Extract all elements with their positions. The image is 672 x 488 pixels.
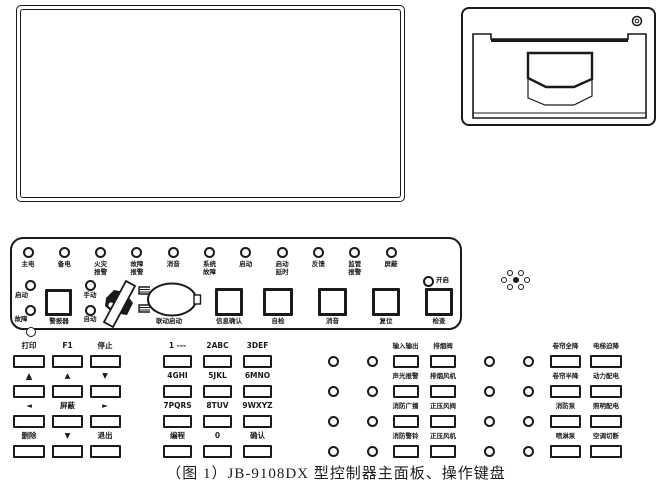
key-smoke-exhaust-fan[interactable] [430, 385, 456, 398]
indicator-led [204, 247, 215, 258]
key-sound-light-alarm[interactable] [393, 385, 419, 398]
key-label-down-icon: ▼ [48, 432, 88, 440]
key-label: 8TUV [198, 402, 238, 410]
device-led [484, 416, 495, 427]
indicator-led [23, 247, 34, 258]
key-up[interactable] [52, 385, 83, 398]
key-1[interactable] [163, 355, 192, 368]
open-led-label: 开启 [436, 277, 456, 285]
device-led [328, 416, 339, 427]
device-key-label: 电梯迫降 [584, 343, 628, 351]
key-label: 0 [198, 432, 238, 440]
key-confirm[interactable] [243, 445, 272, 458]
key-label-left-icon: ◄ [9, 402, 49, 410]
sounder-button-label: 警报器 [39, 318, 79, 326]
manual-led [85, 280, 96, 291]
key-ac-cutoff[interactable] [590, 445, 622, 458]
indicator-led [168, 247, 179, 258]
key-page-down[interactable] [90, 385, 121, 398]
key-label: 6MNO [238, 372, 278, 380]
device-led [484, 356, 495, 367]
check-button[interactable] [425, 288, 453, 316]
device-key-label: 照明配电 [584, 403, 628, 411]
device-key-label: 排烟风机 [421, 373, 465, 381]
panel-keyhole [26, 327, 36, 337]
key-label: 确认 [238, 432, 278, 440]
device-led [523, 356, 534, 367]
printer [461, 7, 656, 126]
key-label: F1 [48, 342, 88, 350]
key-stop[interactable] [90, 355, 121, 368]
key-print[interactable] [13, 355, 45, 368]
device-key-label: 消防泵 [544, 403, 588, 411]
key-right[interactable] [90, 415, 121, 428]
device-key-label: 空调切断 [584, 433, 628, 441]
indicator-led [386, 247, 397, 258]
linkage-start-button[interactable] [136, 281, 202, 319]
key-program[interactable] [163, 445, 192, 458]
key-exit[interactable] [90, 445, 121, 458]
indicator-led-label: 屏蔽 [375, 261, 407, 269]
key-5[interactable] [203, 385, 232, 398]
start-led [25, 280, 36, 291]
speaker-grille [500, 269, 532, 293]
key-fire-pump[interactable] [550, 415, 582, 428]
key-pressurize-valve[interactable] [430, 415, 456, 428]
key-elevator-recall[interactable] [590, 355, 622, 368]
device-led [484, 386, 495, 397]
reset-label: 复位 [364, 318, 408, 326]
device-led [328, 446, 339, 457]
indicator-led-label: 主电 [12, 261, 44, 269]
key-label-down-last-icon: ▼ [85, 372, 125, 380]
indicator-led-label: 备电 [48, 261, 80, 269]
key-3[interactable] [243, 355, 272, 368]
key-smoke-vent-valve[interactable] [430, 355, 456, 368]
device-key-label: 正压风阀 [421, 403, 465, 411]
reset-button[interactable] [372, 288, 400, 316]
indicator-led-label: 启动 延时 [266, 261, 298, 276]
key-label: 屏蔽 [48, 402, 88, 410]
key-left[interactable] [13, 415, 45, 428]
fault-led-label: 故障 [5, 316, 37, 324]
key-8[interactable] [203, 415, 232, 428]
key-page-up[interactable] [13, 385, 45, 398]
device-led [367, 356, 378, 367]
printer-graphic [463, 9, 654, 124]
device-key-label: 动力配电 [584, 373, 628, 381]
device-led [367, 386, 378, 397]
device-led [328, 386, 339, 397]
indicator-led-label: 启动 [230, 261, 262, 269]
device-key-label: 卷帘全降 [544, 343, 588, 351]
indicator-led-label: 消音 [157, 261, 189, 269]
key-f1[interactable] [52, 355, 83, 368]
key-power-distribution[interactable] [590, 385, 622, 398]
printer-status-led [633, 17, 642, 26]
key-6[interactable] [243, 385, 272, 398]
figure-caption: （图 1）JB-9108DX 型控制器主面板、操作键盘 [0, 462, 672, 483]
key-pressurize-fan[interactable] [430, 445, 456, 458]
mute-label: 消音 [311, 318, 355, 326]
key-0[interactable] [203, 445, 232, 458]
info-confirm-button[interactable] [215, 288, 243, 316]
device-led [523, 416, 534, 427]
key-shutter-half-down[interactable] [550, 385, 582, 398]
key-7[interactable] [163, 415, 192, 428]
fault-led [25, 305, 36, 316]
indicator-led [313, 247, 324, 258]
key-io[interactable] [393, 355, 419, 368]
key-2[interactable] [203, 355, 232, 368]
device-key-label: 排烟阀 [421, 343, 465, 351]
key-label: 5JKL [198, 372, 238, 380]
check-label: 检查 [417, 318, 461, 326]
lcd-display [16, 5, 405, 202]
device-led [367, 446, 378, 457]
key-delete[interactable] [13, 445, 45, 458]
key-label-right-icon: ► [85, 402, 125, 410]
key-lighting-distribution[interactable] [590, 415, 622, 428]
key-9[interactable] [243, 415, 272, 428]
indicator-led [59, 247, 70, 258]
device-key-label: 正压风机 [421, 433, 465, 441]
start-led-label: 启动 [6, 292, 38, 300]
device-led [367, 416, 378, 427]
key-4[interactable] [163, 385, 192, 398]
key-label: 编程 [158, 432, 198, 440]
device-led [523, 386, 534, 397]
indicator-led-label: 监管 报警 [339, 261, 371, 276]
key-shield[interactable] [52, 415, 83, 428]
key-label: 1 --- [158, 342, 198, 350]
mute-button[interactable] [318, 288, 347, 316]
device-key-label: 喷淋泵 [544, 433, 588, 441]
controller-figure: 主电 备电 火灾 报警 故障 报警 消音 系统 故障 启动 启动 延时 反馈 监… [0, 0, 672, 488]
key-label-up-first-icon: ▲ [9, 372, 49, 380]
device-led [328, 356, 339, 367]
auto-led [85, 305, 96, 316]
key-label: 4GHI [158, 372, 198, 380]
self-test-label: 自检 [256, 318, 300, 326]
paper-door [528, 53, 592, 87]
key-label: 停止 [85, 342, 125, 350]
key-label: 9WXYZ [238, 402, 278, 410]
key-label-up-icon: ▲ [48, 372, 88, 380]
key-fire-bell[interactable] [393, 445, 419, 458]
sounder-button[interactable] [45, 289, 72, 316]
key-down[interactable] [52, 445, 83, 458]
self-test-button[interactable] [263, 288, 293, 316]
device-key-label: 卷帘半降 [544, 373, 588, 381]
indicator-led-label: 系统 故障 [194, 261, 226, 276]
key-label: 2ABC [198, 342, 238, 350]
paper-slot [491, 39, 628, 42]
indicator-led-label: 反馈 [302, 261, 334, 269]
key-sprinkler-pump[interactable] [550, 445, 582, 458]
key-label: 打印 [9, 342, 49, 350]
key-label: 删除 [9, 432, 49, 440]
key-label: 3DEF [238, 342, 278, 350]
device-led [484, 446, 495, 457]
key-shutter-full-down[interactable] [550, 355, 582, 368]
device-led [523, 446, 534, 457]
key-label: 退出 [85, 432, 125, 440]
linkage-start-label: 联动启动 [147, 318, 191, 326]
key-fire-broadcast[interactable] [393, 415, 419, 428]
open-led [423, 276, 434, 287]
indicator-led [277, 247, 288, 258]
info-confirm-label: 信息确认 [207, 318, 251, 326]
key-label: 7PQRS [158, 402, 198, 410]
lcd-display-inner [20, 9, 401, 198]
